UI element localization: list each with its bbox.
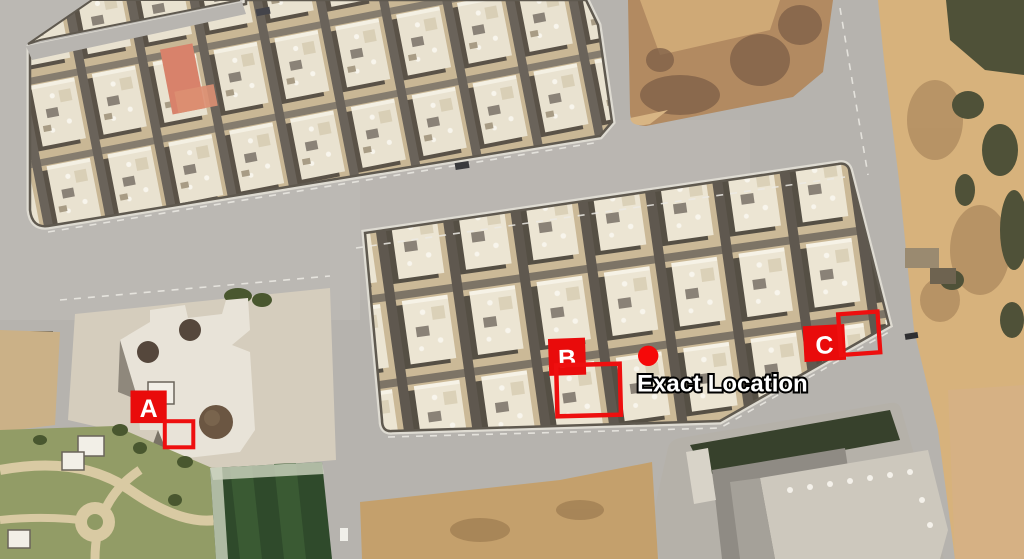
svg-text:A: A [140,395,158,423]
svg-text:C: C [815,331,835,360]
svg-text:Exact Location: Exact Location [637,371,808,398]
svg-text:B: B [558,345,577,374]
